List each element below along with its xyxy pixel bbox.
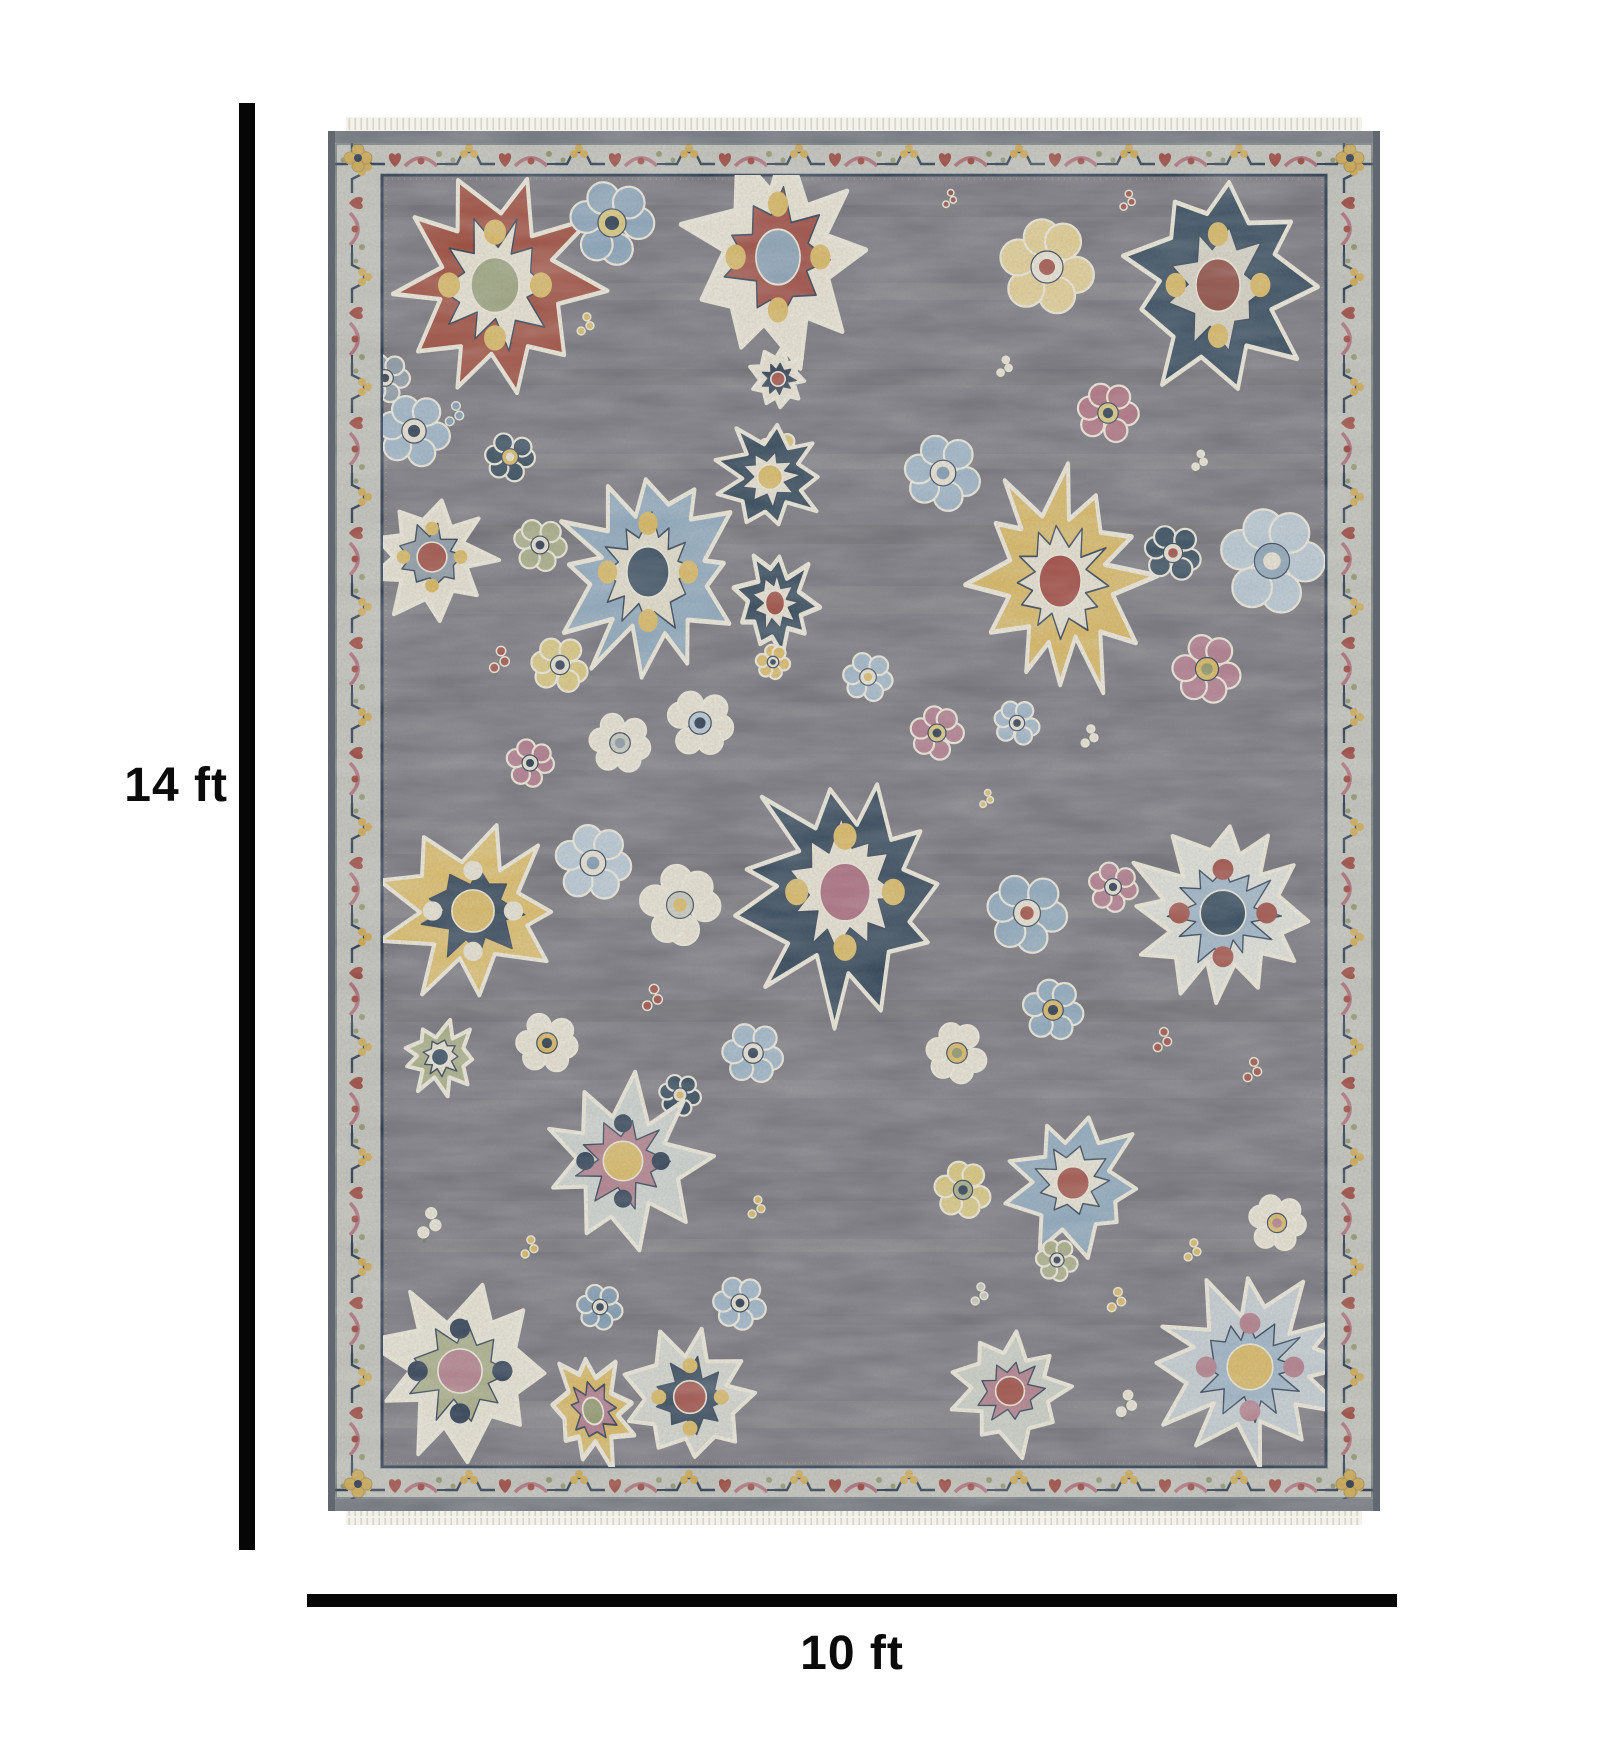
rug-product-image	[328, 117, 1380, 1525]
rug-dimension-diagram: 14 ft	[0, 0, 1600, 1760]
height-dimension-line	[239, 103, 255, 1550]
width-dimension-label: 10 ft	[752, 1626, 952, 1682]
rug-texture-grain	[335, 131, 1373, 1511]
rug-fringe-bottom	[346, 1511, 1362, 1525]
rug-fringe-top	[346, 117, 1362, 131]
width-dimension-line	[307, 1594, 1397, 1607]
height-dimension-label: 14 ft	[60, 758, 228, 814]
